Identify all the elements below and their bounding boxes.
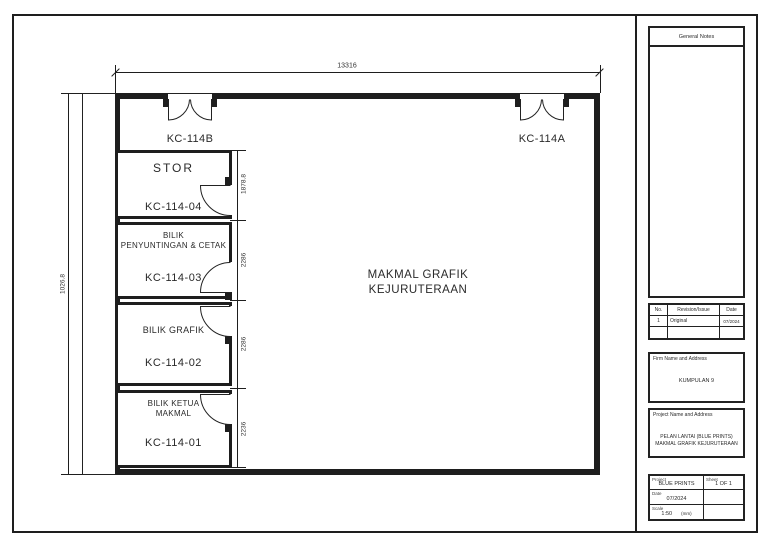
room-code: KC-114-01 [118, 437, 229, 449]
door-swing-kc-114-03 [200, 262, 231, 293]
dimension-line-rooms [237, 150, 238, 468]
info-project-cell: Project BLUE PRINTS [650, 476, 704, 490]
door-jamb [225, 424, 232, 432]
door-jamb [225, 177, 232, 185]
dimension-value-room3: 2286 [241, 337, 248, 351]
info-sheet-value: 1 OF 1 [715, 481, 732, 487]
info-date-value: 07/2024 [667, 496, 687, 502]
revision-col-revision: Revision/Issue [668, 305, 720, 316]
info-scale-cell: Scale 1:50 (mm) [650, 505, 704, 519]
door-swing-kc-114-04 [200, 185, 231, 216]
project-name-line2: MAKMAL GRAFIK KEJURUTERAAN [650, 441, 743, 448]
blueprint-sheet: KC-114B KC-114A STOR KC-114-04 BILIK PEN… [0, 0, 768, 543]
dimension-value-top: 13316 [337, 63, 356, 70]
revision-row1-date: 07/2024 [720, 316, 743, 327]
revision-col-date: Date [720, 305, 743, 316]
info-sheet-label: Sheet [706, 477, 718, 482]
project-name-line1: PELAN LANTAI (BLUE PRINTS) [650, 434, 743, 441]
info-scale-label: Scale [652, 506, 663, 511]
room-name: STOR [118, 163, 229, 173]
dimension-line-left [68, 93, 69, 475]
door-label-kc114a: KC-114A [519, 133, 566, 145]
dimension-tick [61, 93, 82, 94]
info-date-label: Date [652, 491, 662, 496]
general-notes-header: General Notes [650, 28, 743, 47]
dimension-value-room1: 1878.8 [241, 174, 248, 194]
room-code: KC-114-02 [118, 357, 229, 369]
wall-top-segment-1 [115, 93, 168, 99]
room-name-line2: PENYUNTINGAN & CETAK [118, 241, 229, 251]
door-jamb [212, 93, 217, 107]
general-notes-box: General Notes [648, 26, 745, 298]
revision-row2-label [668, 327, 720, 338]
dimension-line-top [115, 72, 600, 73]
info-sheet-cell: Sheet 1 OF 1 [704, 476, 743, 490]
dimension-tick [230, 300, 246, 301]
info-date-cell: Date 07/2024 [650, 490, 704, 504]
revision-col-no: No. [650, 305, 668, 316]
dimension-value-room4: 2236 [241, 422, 248, 436]
project-box-header: Project Name and Address [653, 412, 712, 418]
door-jamb [564, 93, 569, 107]
dimension-tick [230, 220, 246, 221]
double-door-symbol-kc114a [520, 99, 564, 123]
titleblock-separator-line [635, 14, 637, 533]
info-empty-cell [704, 505, 743, 519]
info-project-value: BLUE PRINTS [658, 481, 694, 487]
info-scale-unit: (mm) [681, 511, 692, 516]
room-name: BILIK PENYUNTINGAN & CETAK [118, 231, 229, 251]
double-door-symbol-kc114b [168, 99, 212, 123]
door-jamb [225, 336, 232, 344]
project-box: Project Name and Address PELAN LANTAI (B… [648, 408, 745, 458]
door-swing-kc-114-01 [200, 394, 231, 425]
dimension-value-room2: 2286 [241, 253, 248, 267]
firm-name: KUMPULAN 9 [650, 378, 743, 385]
revision-row1-no: 1 [650, 316, 668, 327]
dimension-value-left: 1026.8 [60, 274, 67, 294]
room-name-line1: BILIK [118, 231, 229, 241]
project-name: PELAN LANTAI (BLUE PRINTS) MAKMAL GRAFIK… [650, 434, 743, 448]
door-label-kc114b: KC-114B [167, 133, 214, 145]
dimension-tick [230, 150, 246, 151]
firm-box-header: Firm Name and Address [653, 356, 707, 362]
info-scale-value: 1:50 [661, 511, 672, 517]
door-swing-kc-114-02 [200, 306, 231, 337]
firm-box: Firm Name and Address KUMPULAN 9 [648, 352, 745, 403]
hall-label-line2: KEJURUTERAAN [368, 283, 469, 298]
dimension-tick [115, 65, 116, 93]
info-empty-cell [704, 490, 743, 504]
revision-table: No. Revision/Issue Date 1 Original 07/20… [648, 303, 745, 340]
revision-row2-date [720, 327, 743, 338]
wall-top-segment-2 [212, 93, 520, 99]
dimension-tick [61, 474, 82, 475]
revision-row1-label: Original [668, 316, 720, 327]
dimension-tick [230, 388, 246, 389]
sheet-info-grid: Project BLUE PRINTS Sheet 1 OF 1 Date 07… [648, 474, 745, 521]
info-project-label: Project [652, 477, 666, 482]
wall-bottom [115, 469, 600, 475]
wall-right [594, 93, 600, 475]
door-jamb [225, 292, 232, 300]
hall-label-line1: MAKMAL GRAFIK [368, 268, 469, 283]
revision-row2-no [650, 327, 668, 338]
hall-label: MAKMAL GRAFIK KEJURUTERAAN [368, 268, 469, 298]
room-name-line1: STOR [118, 163, 229, 173]
dimension-tick [230, 467, 246, 468]
